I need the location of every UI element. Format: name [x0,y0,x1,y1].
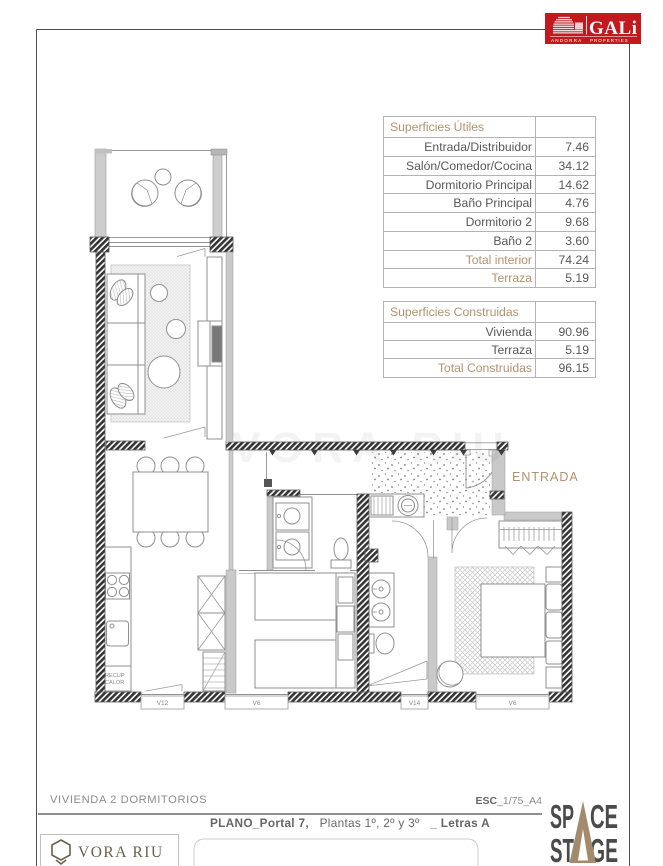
svg-text:ANDORRA: ANDORRA [551,38,582,43]
svg-text:ENTRADA: ENTRADA [512,470,579,484]
svg-text:V6: V6 [253,700,261,707]
svg-text:VORA RIU: VORA RIU [232,424,513,472]
svg-text:V14: V14 [409,700,421,707]
svg-text:CALOR: CALOR [105,680,124,686]
svg-text:V12: V12 [157,700,169,707]
svg-text:SP: SP [550,799,574,836]
svg-text:PROPERTIES: PROPERTIES [590,38,629,43]
svg-text:V6: V6 [509,700,517,707]
svg-text:VORA RIU: VORA RIU [78,844,164,861]
svg-text:CE: CE [590,799,618,836]
svg-text:GALi: GALi [589,18,637,39]
svg-text:RECUP: RECUP [105,673,125,679]
